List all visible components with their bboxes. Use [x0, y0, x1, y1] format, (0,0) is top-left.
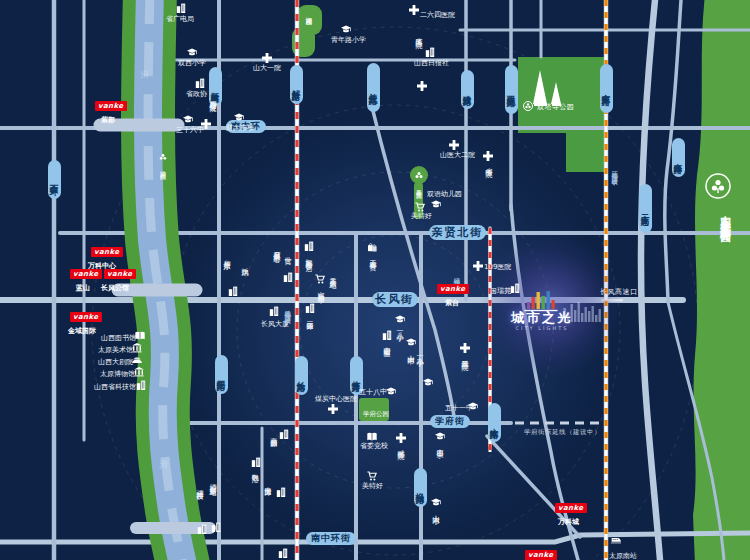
poi-label: 山西省军区	[382, 341, 390, 346]
hospital-icon	[262, 53, 272, 63]
vanke-property-label: 紫郡	[101, 115, 115, 125]
vanke-logo-badge: vanke	[437, 284, 469, 294]
poi-label: 山大附中	[406, 349, 414, 353]
book-icon	[367, 432, 377, 442]
school-icon	[423, 378, 433, 388]
poi-label: 九一小学	[415, 351, 423, 355]
poi-label: 市妇幼保健院	[208, 94, 216, 100]
poi-label: 山西图书馆	[101, 334, 136, 342]
poi-label: 省委党校	[360, 442, 388, 450]
building-icon	[276, 487, 286, 497]
poi-label: 君威财富中心	[272, 245, 280, 251]
poi-label: 山西大学	[435, 443, 443, 447]
road-label: 西中环	[48, 160, 61, 199]
school-icon	[435, 432, 445, 442]
road-label-text: 坞城北路	[452, 272, 460, 276]
school-icon	[395, 315, 405, 325]
river-watermark: 汾河	[158, 452, 169, 454]
school-icon	[431, 498, 441, 508]
school-icon	[187, 48, 197, 58]
poi-label: 高新国际	[269, 432, 277, 436]
vanke-property-label: 长风公馆	[101, 283, 129, 293]
cart-icon	[315, 274, 325, 284]
theater-icon	[132, 355, 142, 365]
building-icon	[425, 47, 435, 57]
poi-label: 美特好	[411, 212, 432, 220]
poi-label: 太原南站	[609, 552, 637, 560]
poi-label: 三晋国际	[305, 315, 313, 319]
road-label: 东中环路	[600, 64, 613, 113]
building-icon	[176, 3, 186, 13]
metro-line-label: 地铁二号线（建设中）	[283, 305, 291, 315]
hospital-icon	[328, 404, 338, 414]
poi-label: 王府井百货	[368, 254, 376, 259]
poi-label: 沃尔玛	[240, 262, 248, 265]
poi-label: 清华科技园	[195, 484, 203, 489]
poi-label: 长风大厦	[261, 320, 289, 328]
school-icon	[406, 338, 416, 348]
building-icon	[251, 457, 261, 467]
building-icon	[304, 241, 314, 251]
vanke-property-label: 蓝山	[76, 283, 90, 293]
road-label: 坞城路	[414, 468, 427, 507]
bags-icon	[367, 242, 377, 252]
road-label: 并州北路	[367, 63, 380, 112]
building-icon	[228, 286, 238, 296]
vanke-property-label: 紫台	[445, 298, 459, 308]
vanke-logo-badge: vanke	[91, 247, 123, 257]
poi-label: 武警医院	[396, 444, 404, 448]
shuangta-park-label: 双塔寺公园	[537, 102, 575, 112]
poi-label: 和信摩尔	[222, 254, 230, 258]
river-watermark: 汾河	[139, 62, 150, 64]
school-icon	[234, 113, 244, 123]
poi-label: 山大一院	[253, 64, 281, 72]
road-label: 南中环街	[306, 532, 356, 545]
school-icon	[183, 115, 193, 125]
poi-label: 双西小学	[178, 59, 206, 67]
poi-label: 天美新天地	[328, 272, 336, 277]
road-label: 太榆路	[488, 403, 501, 442]
vanke-logo-badge: vanke	[104, 269, 136, 279]
poi-label: 二六四医院	[420, 11, 455, 19]
construction-road-label: 学府街东延线（建设中）	[524, 429, 601, 437]
school-icon	[386, 387, 396, 397]
poi-label: 中海国际	[263, 481, 271, 485]
building-icon	[283, 272, 293, 282]
vanke-logo-badge: vanke	[555, 503, 587, 513]
poi-label: 青年路小学	[331, 36, 366, 44]
road-label: 二广高速	[639, 184, 652, 233]
poi-label: 八一小学	[395, 326, 403, 330]
poi-label: 凯宾斯基饭店	[304, 253, 312, 259]
building-icon	[195, 78, 205, 88]
hospital-icon	[483, 151, 493, 161]
hospital-icon	[473, 261, 483, 271]
poi-label: 省政协	[186, 90, 207, 98]
poi-label: 省广电局	[166, 15, 194, 23]
building-icon	[382, 330, 392, 340]
highway-exit-label: 长风高速口	[600, 288, 638, 296]
cart-icon	[367, 471, 377, 481]
road-label: 东峰路	[672, 138, 685, 177]
project-glow	[479, 233, 623, 377]
building-icon	[305, 303, 315, 313]
poi-label: 山西日报社	[414, 59, 449, 67]
poi-label: 太原博物馆	[100, 370, 135, 378]
road-label: 平阳路	[215, 355, 228, 394]
hospital-icon	[396, 433, 406, 443]
vanke-logo-badge: vanke	[70, 269, 102, 279]
poi-label: 省人民医院	[414, 32, 422, 37]
location-map: 迎泽公园 双塔寺公园 学府公园 汾河公园 青年公园 东山五龙生态森林公园 城市之…	[0, 0, 750, 560]
poi-label: 世贸	[283, 251, 291, 253]
poi-label: 煤炭中心医院	[315, 395, 357, 403]
poi-label: 山大附小	[431, 509, 439, 513]
museum-icon	[134, 367, 144, 377]
school-icon	[341, 25, 351, 35]
school-icon	[431, 200, 441, 210]
poi-label: 清控创新基地	[208, 478, 216, 484]
metro-line-label: 地铁一号线（建设中）	[610, 166, 618, 176]
vanke-logo-badge: vanke	[525, 550, 557, 560]
building-icon	[279, 429, 289, 439]
cart-icon	[415, 202, 425, 212]
road-label: 长治路	[295, 356, 308, 395]
road-label: 长风街	[372, 292, 418, 307]
fenhe-park-label: 汾河公园	[158, 166, 167, 170]
hospital-icon	[417, 81, 427, 91]
road-label: 亲贤北街	[429, 225, 486, 240]
poi-label: 三十六中	[176, 126, 204, 134]
building-icon	[278, 548, 288, 558]
poi-label: 双语幼儿园	[427, 190, 462, 198]
hospital-icon	[449, 140, 459, 150]
yingze-park-label: 迎泽公园	[304, 11, 313, 15]
poi-label: 国瑞苑	[490, 287, 511, 295]
poi-label: 109医院	[484, 263, 511, 271]
poi-label: 五十一中	[445, 404, 473, 412]
xuefu-park-label: 学府公园	[363, 410, 389, 419]
vanke-property-label: 金域国际	[68, 326, 96, 336]
hospital-icon	[460, 343, 470, 353]
building-icon	[136, 380, 146, 390]
building-icon	[197, 524, 207, 534]
poi-label: 家乐福超市	[316, 286, 324, 291]
poi-label: 山西省科技馆	[94, 383, 136, 391]
forest-park-label: 东山五龙生态森林公园	[719, 206, 733, 226]
poi-label: 省中医院	[484, 162, 492, 166]
train-icon	[611, 535, 621, 545]
poi-label: 美特好	[362, 482, 383, 490]
building-icon	[510, 283, 520, 293]
poi-label: 山医大二院	[440, 151, 475, 159]
poi-label: 五十八中	[359, 388, 387, 396]
road-label: 解放路	[290, 65, 303, 104]
book-icon	[135, 331, 145, 341]
road-label: 学府街	[430, 415, 470, 428]
road-label: 建设路	[461, 70, 474, 109]
hospital-icon	[409, 5, 419, 15]
poi-label: 数码港	[250, 468, 258, 471]
poi-label: 太原美术馆	[98, 346, 133, 354]
road-label: 双塔北路	[505, 65, 518, 114]
road-label: 新建路	[209, 67, 222, 106]
poi-label: 铁三局医院	[460, 354, 468, 359]
project-subtitle: CITY LIGHTS	[506, 325, 578, 331]
museum-icon	[132, 343, 142, 353]
hospital-icon	[201, 119, 211, 129]
qingnian-park-label: 青年公园	[414, 185, 423, 189]
vanke-property-label: 万科城	[558, 517, 579, 527]
poi-label: 山西大剧院	[98, 358, 133, 366]
poi-label: 财大东校	[226, 124, 254, 132]
vanke-logo-badge: vanke	[70, 312, 102, 322]
vanke-logo-badge: vanke	[95, 101, 127, 111]
building-icon	[269, 306, 279, 316]
building-icon	[211, 522, 221, 532]
